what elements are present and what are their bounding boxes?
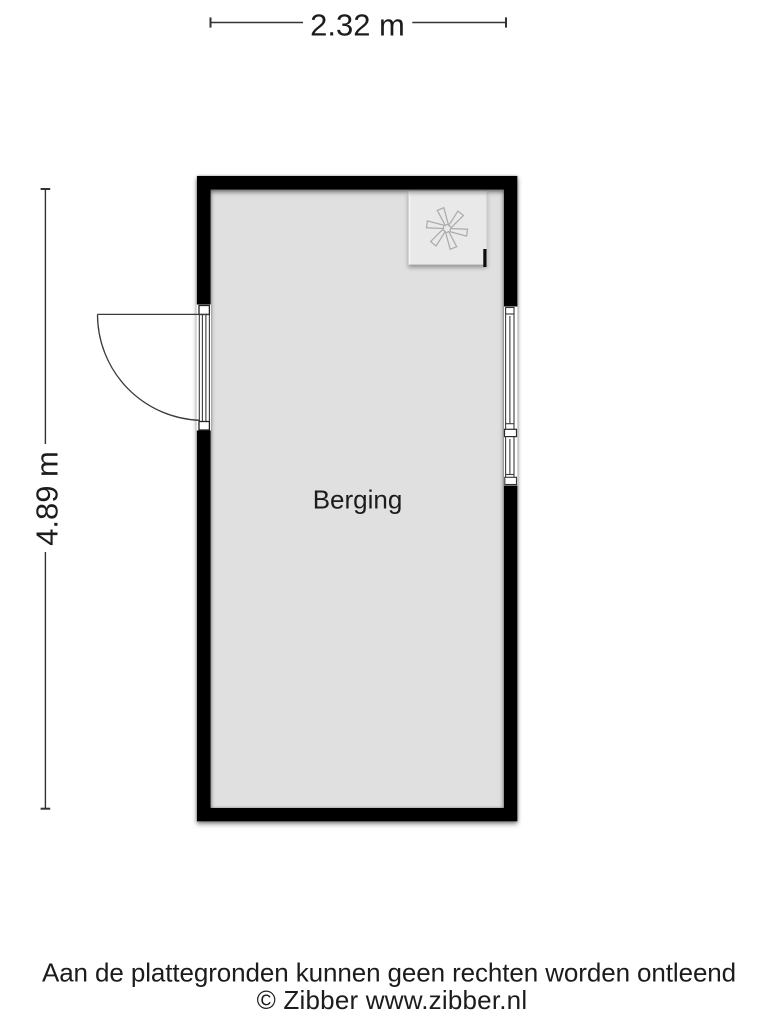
- svg-text:© Zibber www.zibber.nl: © Zibber www.zibber.nl: [257, 985, 528, 1015]
- svg-text:2.32 m: 2.32 m: [310, 8, 405, 43]
- svg-text:Berging: Berging: [313, 485, 403, 515]
- svg-text:Aan de plattegronden kunnen ge: Aan de plattegronden kunnen geen rechten…: [42, 958, 736, 988]
- svg-text:4.89 m: 4.89 m: [30, 451, 65, 546]
